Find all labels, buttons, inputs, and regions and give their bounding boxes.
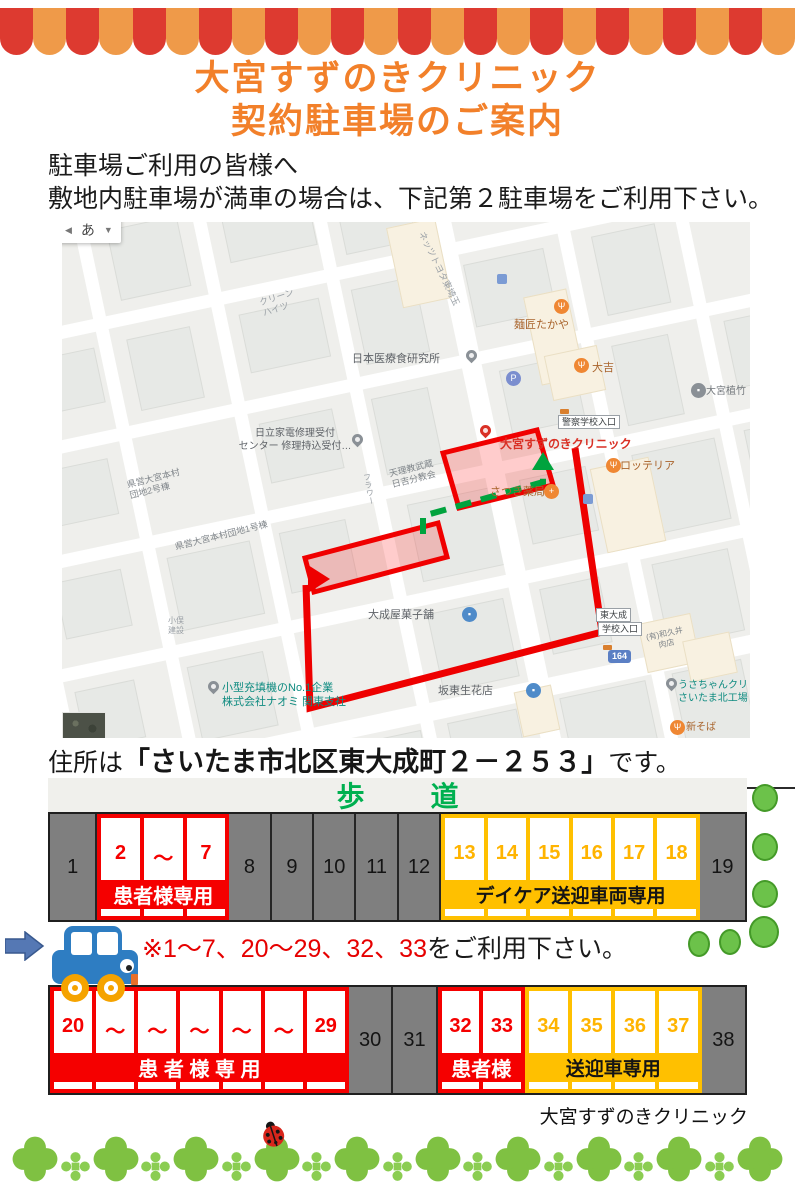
group-banner: 患者様 <box>442 1053 521 1082</box>
parking-space: 1 <box>50 814 97 920</box>
usage-note-suffix: をご利用下さい。 <box>427 935 627 963</box>
space-number: 33 <box>483 1015 520 1038</box>
intro-line1: 駐車場ご利用の皆様へ <box>48 150 795 183</box>
clover-icon <box>93 1136 139 1182</box>
awning-scallop <box>265 8 298 55</box>
awning-border <box>0 8 795 55</box>
awning-scallop <box>232 8 265 55</box>
space-number: 30 <box>359 1029 381 1052</box>
parking-space: 11 <box>356 814 398 920</box>
map-label: うさちゃんクリ さいたま北工場 <box>678 680 748 705</box>
awning-scallop <box>596 8 629 55</box>
map-label: 小俣 建設 <box>168 616 184 636</box>
awning-scallop <box>497 8 530 55</box>
address-value: 「さいたま市北区東大成町２－２５３」 <box>123 747 608 777</box>
restaurant-icon: Ψ <box>574 358 589 373</box>
map-label: 大成屋菓子舗 <box>368 609 434 623</box>
space-number: 16 <box>573 842 611 865</box>
ime-back-icon[interactable]: ◀ <box>65 225 72 236</box>
usage-note: ※1～7、20～29、32、33をご利用下さい。 <box>142 929 627 965</box>
parking-group-yellow: 34353637送迎車専用 <box>525 987 702 1093</box>
awning-scallop <box>33 8 66 55</box>
map-label: 大宮植竹 <box>706 386 746 399</box>
parking-icon: P <box>506 371 521 386</box>
intro-text: 駐車場ご利用の皆様へ 敷地内駐車場が満車の場合は、下記第２駐車場をご利用下さい。 <box>48 150 795 216</box>
awning-scallop <box>431 8 464 55</box>
bus-icon <box>603 645 612 650</box>
parking-space: 12 <box>399 814 441 920</box>
space-number: 12 <box>408 856 430 879</box>
transit-icon <box>583 494 593 504</box>
clover-icon <box>382 1151 413 1182</box>
space-number: ～ <box>138 1015 176 1044</box>
awning-scallop <box>629 8 662 55</box>
parking-space: 38 <box>702 987 745 1093</box>
space-number: 36 <box>615 1015 654 1038</box>
awning-scallop <box>663 8 696 55</box>
transit-icon <box>497 274 507 284</box>
page-title-line2: 契約駐車場のご案内 <box>0 101 795 144</box>
awning-scallop <box>696 8 729 55</box>
address-prefix: 住所は <box>48 749 123 777</box>
clover-border <box>0 1126 795 1182</box>
group-banner: 送迎車専用 <box>529 1053 698 1082</box>
pharmacy-icon: + <box>544 484 559 499</box>
place-icon: ▪ <box>691 383 706 398</box>
clover-icon <box>221 1151 252 1182</box>
clover-icon <box>704 1151 735 1182</box>
restaurant-icon: Ψ <box>670 720 685 735</box>
space-number: 31 <box>403 1029 425 1052</box>
awning-scallop <box>166 8 199 55</box>
space-number: 35 <box>572 1015 611 1038</box>
chevron-down-icon[interactable]: ▼ <box>104 225 113 235</box>
space-number: 32 <box>442 1015 479 1038</box>
clover-icon <box>12 1136 58 1182</box>
space-number: 17 <box>615 842 653 865</box>
clover-icon <box>60 1151 91 1182</box>
clover-icon <box>737 1136 783 1182</box>
awning-scallop <box>530 8 563 55</box>
arrow-icon <box>5 931 45 961</box>
route-shield: 164 <box>608 650 631 663</box>
map-label: 大吉 <box>592 362 614 376</box>
group-banner: 患 者 様 専 用 <box>54 1053 345 1082</box>
bush-icon <box>752 833 778 861</box>
awning-scallop <box>762 8 795 55</box>
parking-space: 8 <box>229 814 271 920</box>
clover-icon <box>415 1136 461 1182</box>
parking-diagram-top: 12～7患者様専用89101112131415161718デイケア送迎車両専用1… <box>48 812 747 922</box>
parking-group-yellow: 131415161718デイケア送迎車両専用 <box>441 814 700 920</box>
sidewalk-label-left: 歩 <box>336 775 364 815</box>
space-number: 15 <box>530 842 568 865</box>
space-number: 7 <box>187 842 226 865</box>
space-number: 29 <box>307 1015 345 1038</box>
flyer-page: { "header": { "title_line1": "大宮すずのきクリニッ… <box>0 0 795 1182</box>
footer-clinic-name: 大宮すずのきクリニック <box>540 1102 748 1129</box>
sidewalk-label-right: 道 <box>431 775 459 815</box>
clover-icon <box>140 1151 171 1182</box>
ime-toolbar[interactable]: ◀ あ ▼ <box>62 222 121 243</box>
group-banner: デイケア送迎車両専用 <box>445 880 696 909</box>
parking-space: 19 <box>700 814 745 920</box>
space-number: ～ <box>265 1015 303 1044</box>
awning-scallop <box>133 8 166 55</box>
space-number: ～ <box>144 842 183 871</box>
parking-group-red: 2～7患者様専用 <box>97 814 229 920</box>
awning-scallop <box>0 8 33 55</box>
map-label: 麺匠たかや <box>514 319 569 333</box>
map-label: さつき薬局 <box>490 486 545 500</box>
restaurant-icon: Ψ <box>554 299 569 314</box>
awning-scallop <box>364 8 397 55</box>
space-number: 20 <box>54 1015 92 1038</box>
shop-icon: ▪ <box>462 607 477 622</box>
map-label: 坂東生花店 <box>438 685 493 699</box>
group-banner: 患者様専用 <box>101 880 225 909</box>
clover-icon <box>623 1151 654 1182</box>
bus-stop-label: 警察学校入口 <box>558 415 620 429</box>
parking-space: 9 <box>272 814 314 920</box>
bush-icon <box>752 880 778 908</box>
page-title-line1: 大宮すずのきクリニック <box>0 58 795 101</box>
bush-icon <box>719 929 741 955</box>
bush-icon <box>688 931 710 957</box>
bus-stop-label: 学校入口 <box>598 622 642 636</box>
restaurant-icon: Ψ <box>606 458 621 473</box>
awning-scallop <box>298 8 331 55</box>
bush-icon <box>752 784 778 812</box>
map-canvas[interactable]: クリーン ハイツネッツトヨタ東埼玉日本医療食研究所麺匠たかや大吉大宮植竹日立家電… <box>62 222 750 738</box>
page-title: 大宮すずのきクリニック 契約駐車場のご案内 <box>0 58 795 143</box>
parking-space: 30 <box>349 987 393 1093</box>
space-number: 38 <box>712 1029 734 1052</box>
map-label: 日立家電修理受付 センター 修理持込受付… <box>228 428 362 453</box>
space-number: 11 <box>366 856 387 879</box>
space-number: 37 <box>659 1015 698 1038</box>
clover-icon <box>301 1151 332 1182</box>
map-label: ロッテリア <box>620 460 675 474</box>
space-number: 34 <box>529 1015 568 1038</box>
space-number: 10 <box>323 856 345 879</box>
usage-note-numbers: ※1～7、20～29、32、33 <box>142 935 427 963</box>
car-illustration <box>44 918 144 1012</box>
bus-stop-label: 東大成 <box>596 608 631 622</box>
space-number: 8 <box>244 856 255 879</box>
ime-mode[interactable]: あ <box>81 222 95 240</box>
space-number: 2 <box>101 842 140 865</box>
parking-space: 31 <box>393 987 437 1093</box>
awning-scallop <box>563 8 596 55</box>
awning-scallop <box>66 8 99 55</box>
satellite-thumbnail[interactable] <box>62 712 106 738</box>
space-number: 1 <box>67 856 78 879</box>
shop-icon: ▪ <box>526 683 541 698</box>
bus-icon <box>560 409 569 414</box>
space-number: 9 <box>286 856 297 879</box>
awning-scallop <box>464 8 497 55</box>
awning-scallop <box>331 8 364 55</box>
space-number: 18 <box>657 842 695 865</box>
clover-icon <box>656 1136 702 1182</box>
map-label: 新そば <box>686 722 716 735</box>
parking-space: 10 <box>314 814 356 920</box>
map-label: 大宮すずのきクリニック <box>500 437 632 452</box>
bush-icon <box>749 916 779 948</box>
sidewalk-band: 歩 道 <box>48 778 747 812</box>
address-suffix: です。 <box>608 749 681 777</box>
parking-group-red: 3233患者様 <box>438 987 525 1093</box>
awning-scallop <box>398 8 431 55</box>
map-label: 日本医療食研究所 <box>352 353 440 367</box>
clover-icon <box>334 1136 380 1182</box>
space-number: ～ <box>96 1015 134 1044</box>
clover-icon <box>495 1136 541 1182</box>
space-number: 13 <box>445 842 483 865</box>
space-number: 19 <box>711 856 733 879</box>
space-number: ～ <box>223 1015 261 1044</box>
awning-scallop <box>199 8 232 55</box>
space-number: 14 <box>488 842 526 865</box>
parking-diagram-bottom: 20～～～～～29患 者 様 専 用30313233患者様34353637送迎車… <box>48 985 747 1095</box>
clover-icon <box>576 1136 622 1182</box>
clover-icon <box>543 1151 574 1182</box>
clover-icon <box>173 1136 219 1182</box>
intro-line2: 敷地内駐車場が満車の場合は、下記第２駐車場をご利用下さい。 <box>48 183 795 216</box>
clover-icon <box>462 1151 493 1182</box>
awning-scallop <box>99 8 132 55</box>
space-number: ～ <box>180 1015 218 1044</box>
awning-scallop <box>729 8 762 55</box>
map-label: 小型充填機のNo.1企業 株式会社ナオミ 関東支社 <box>222 682 346 710</box>
